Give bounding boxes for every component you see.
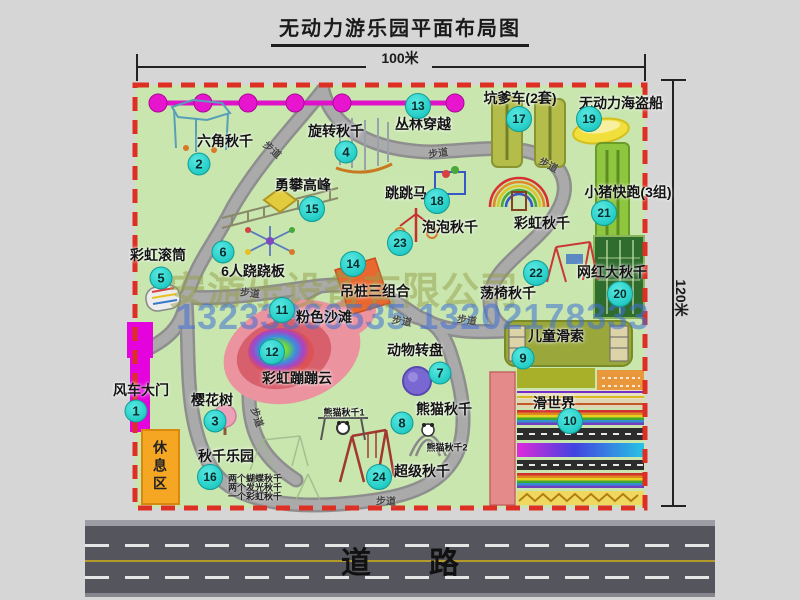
road-label: 道路 (85, 526, 715, 593)
windmill-gate (127, 322, 153, 432)
piggy-run-strip (596, 143, 629, 245)
animal-carousel (403, 367, 431, 395)
rest-area-block (142, 430, 179, 504)
rainbow-band-1 (517, 410, 644, 425)
park-map-graphic (0, 0, 800, 600)
road: 道路 (85, 520, 715, 597)
playground-plan-page: 无动力游乐园平面布局图 100米 120米 (0, 0, 800, 600)
rainbow-band-2 (517, 473, 644, 488)
net-swing-mat (594, 236, 644, 318)
kids-zipline-block (505, 321, 632, 366)
